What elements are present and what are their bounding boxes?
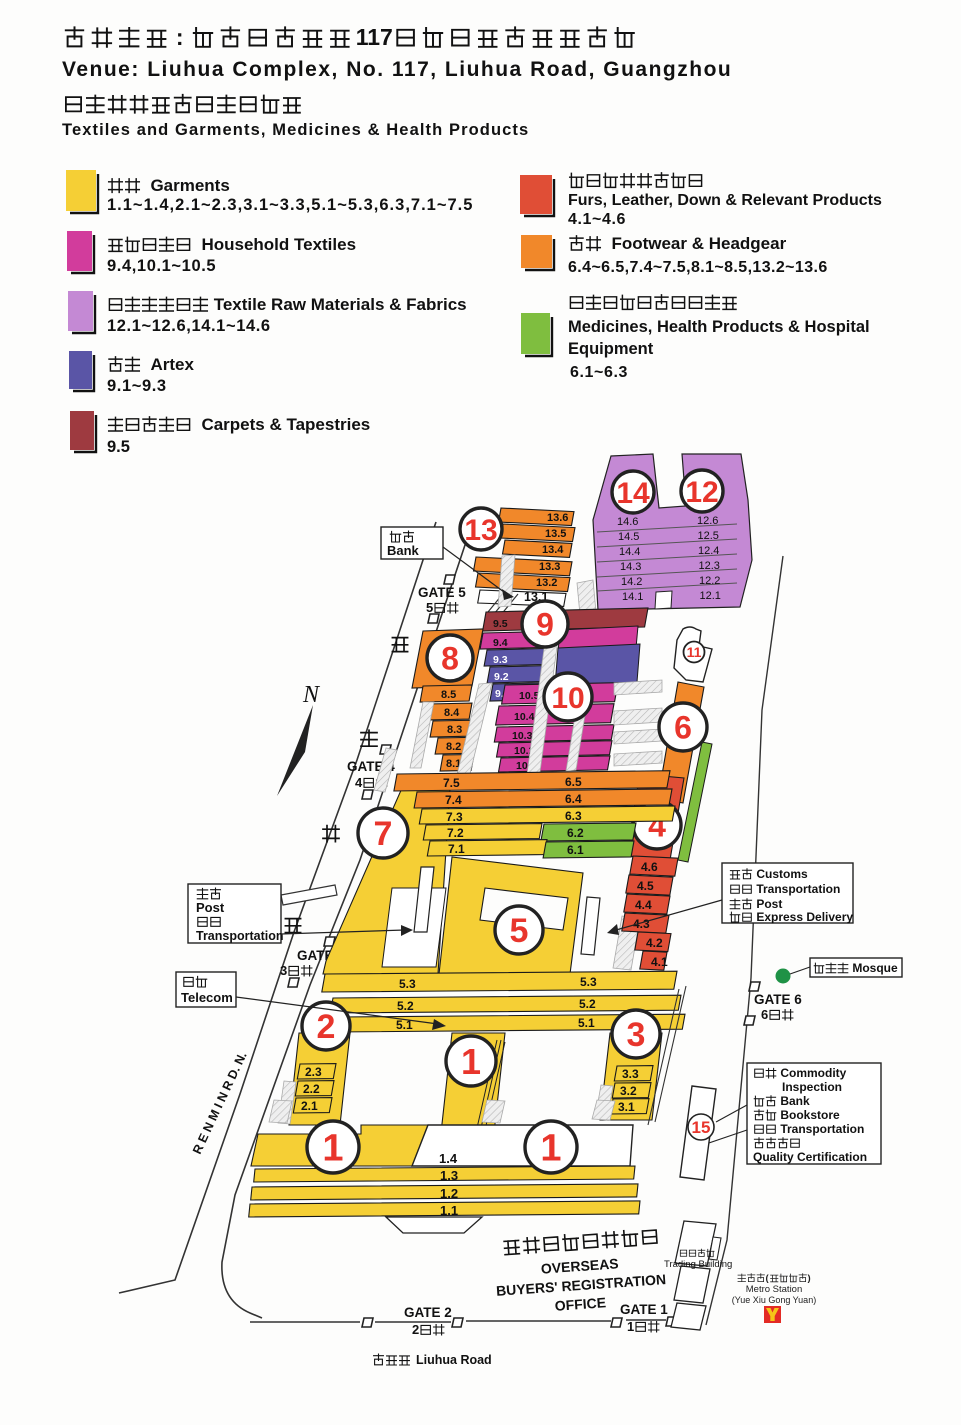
- svg-text:Transportation: Transportation: [780, 1122, 864, 1136]
- svg-text:6.1~6.3: 6.1~6.3: [570, 364, 628, 381]
- svg-text:10.5: 10.5: [519, 690, 540, 702]
- svg-text:GATE 1: GATE 1: [620, 1302, 668, 1317]
- svg-text:10.3: 10.3: [512, 730, 533, 742]
- svg-text:9.5: 9.5: [107, 438, 130, 456]
- svg-text:GATE 2: GATE 2: [404, 1305, 452, 1320]
- svg-text:14: 14: [616, 477, 650, 510]
- svg-text:12: 12: [685, 476, 718, 509]
- svg-text:5.3: 5.3: [580, 975, 597, 989]
- svg-text:GATE 5: GATE 5: [418, 585, 466, 600]
- svg-text:Customs: Customs: [756, 867, 808, 881]
- svg-text:2.2: 2.2: [303, 1082, 320, 1096]
- svg-text:1.1~1.4,2.1~2.3,3.1~3.3,5.1~5.: 1.1~1.4,2.1~2.3,3.1~3.3,5.1~5.3,6.3,7.1~…: [107, 196, 473, 214]
- svg-text:2: 2: [317, 1008, 336, 1046]
- svg-text:3.1: 3.1: [618, 1100, 635, 1114]
- svg-text:9: 9: [536, 607, 554, 643]
- svg-text:9.5: 9.5: [493, 618, 508, 630]
- svg-text:13.6: 13.6: [547, 512, 568, 524]
- svg-text:Household Textiles: Household Textiles: [201, 235, 356, 254]
- svg-text:12.3: 12.3: [699, 560, 720, 572]
- svg-text:5.2: 5.2: [579, 997, 596, 1011]
- svg-text:1: 1: [627, 1319, 634, 1334]
- svg-text:12.6: 12.6: [697, 515, 718, 527]
- svg-text:Bank: Bank: [387, 543, 420, 558]
- svg-text:9.4: 9.4: [493, 637, 508, 649]
- svg-text:7.1: 7.1: [448, 842, 465, 856]
- svg-text:2: 2: [412, 1322, 419, 1337]
- svg-text:): ): [807, 1273, 810, 1284]
- svg-text:Commodity: Commodity: [780, 1066, 846, 1080]
- svg-text:7.2: 7.2: [447, 826, 464, 840]
- svg-text:8.3: 8.3: [447, 724, 462, 736]
- svg-text:1.3: 1.3: [440, 1168, 458, 1183]
- svg-text:1: 1: [461, 1041, 481, 1082]
- svg-text:9.2: 9.2: [494, 671, 509, 683]
- svg-text:14.2: 14.2: [621, 576, 642, 588]
- svg-text:5: 5: [426, 600, 433, 615]
- svg-text:N: N: [302, 682, 321, 708]
- svg-text:6.4~6.5,7.4~7.5,8.1~8.5,13.2~1: 6.4~6.5,7.4~7.5,8.1~8.5,13.2~13.6: [568, 259, 828, 276]
- svg-text:11: 11: [687, 644, 702, 660]
- svg-text:GATE 6: GATE 6: [754, 992, 802, 1007]
- svg-text:7: 7: [374, 815, 393, 853]
- svg-text:12.4: 12.4: [698, 545, 719, 557]
- svg-text:2.1: 2.1: [301, 1099, 318, 1113]
- svg-text:Express Delivery: Express Delivery: [756, 910, 853, 924]
- svg-text:3.2: 3.2: [620, 1084, 637, 1098]
- svg-text:2.3: 2.3: [305, 1065, 322, 1079]
- svg-text:14.1: 14.1: [622, 591, 643, 603]
- svg-text:8.2: 8.2: [446, 741, 461, 753]
- svg-text:Transportation: Transportation: [196, 929, 284, 943]
- svg-text:1.1: 1.1: [440, 1203, 458, 1218]
- svg-text:4.1~4.6: 4.1~4.6: [568, 211, 626, 228]
- svg-text:Telecom: Telecom: [181, 990, 233, 1005]
- svg-text:13.2: 13.2: [536, 577, 557, 589]
- svg-text:6.3: 6.3: [565, 809, 582, 823]
- svg-text:13.3: 13.3: [539, 561, 560, 573]
- svg-text:7.3: 7.3: [446, 810, 463, 824]
- svg-text:4.2: 4.2: [646, 936, 663, 950]
- svg-text:Liuhua Road: Liuhua Road: [416, 1353, 492, 1367]
- svg-text:Mosque: Mosque: [852, 961, 898, 975]
- svg-text:8.5: 8.5: [441, 689, 456, 701]
- svg-text:12.2: 12.2: [699, 575, 720, 587]
- svg-text:Bookstore: Bookstore: [780, 1108, 840, 1122]
- svg-text:Trading Building: Trading Building: [664, 1259, 732, 1270]
- svg-text:9.3: 9.3: [493, 654, 508, 666]
- svg-text:Carpets & Tapestries: Carpets & Tapestries: [201, 415, 370, 434]
- svg-text:Textiles and Garments, Medicin: Textiles and Garments, Medicines & Healt…: [62, 121, 529, 139]
- svg-text:Venue: Liuhua Complex, No. 117: Venue: Liuhua Complex, No. 117, Liuhua R…: [62, 58, 732, 81]
- svg-text:3: 3: [627, 1016, 646, 1054]
- svg-text:13.5: 13.5: [545, 528, 566, 540]
- svg-text:3.3: 3.3: [622, 1067, 639, 1081]
- svg-text:1: 1: [540, 1128, 561, 1170]
- svg-text:15: 15: [692, 1118, 711, 1137]
- svg-text:10: 10: [551, 682, 584, 715]
- svg-text:12.1~12.6,14.1~14.6: 12.1~12.6,14.1~14.6: [107, 317, 271, 335]
- svg-text:Quality Certification: Quality Certification: [753, 1150, 867, 1164]
- svg-text:14.6: 14.6: [617, 516, 638, 528]
- svg-text:8.4: 8.4: [444, 707, 460, 719]
- svg-text:4.5: 4.5: [637, 879, 654, 893]
- svg-text:6: 6: [674, 710, 692, 746]
- svg-text:Transportation: Transportation: [756, 882, 840, 896]
- svg-text:14.5: 14.5: [618, 531, 639, 543]
- svg-text:Post: Post: [196, 900, 225, 915]
- svg-text:(Yue Xiu Gong Yuan): (Yue Xiu Gong Yuan): [732, 1295, 816, 1305]
- svg-text:Bank: Bank: [780, 1094, 810, 1108]
- svg-text:1.2: 1.2: [440, 1186, 458, 1201]
- svg-text:1: 1: [322, 1128, 343, 1170]
- svg-text:6: 6: [761, 1007, 768, 1022]
- svg-text:5: 5: [510, 912, 529, 950]
- svg-text:7.4: 7.4: [445, 793, 462, 807]
- svg-text:3: 3: [280, 963, 287, 978]
- svg-text:6.1: 6.1: [567, 843, 584, 857]
- svg-text:6.2: 6.2: [567, 826, 584, 840]
- svg-text:5.2: 5.2: [397, 999, 414, 1013]
- svg-text:14.3: 14.3: [620, 561, 641, 573]
- svg-text:5.1: 5.1: [578, 1016, 595, 1030]
- svg-text:13.4: 13.4: [542, 544, 564, 556]
- svg-text:Garments: Garments: [150, 176, 229, 195]
- svg-text:4.1: 4.1: [651, 955, 668, 969]
- svg-text:Artex: Artex: [150, 355, 194, 374]
- svg-text:4.6: 4.6: [641, 860, 658, 874]
- svg-text:Post: Post: [756, 897, 782, 911]
- svg-text:9.4,10.1~10.5: 9.4,10.1~10.5: [107, 257, 216, 275]
- svg-text:1.4: 1.4: [439, 1151, 458, 1166]
- svg-text:4: 4: [355, 775, 363, 790]
- svg-text:Metro Station: Metro Station: [746, 1284, 803, 1295]
- svg-text:Textile Raw Materials & Fabric: Textile Raw Materials & Fabrics: [214, 295, 467, 314]
- svg-text:Equipment: Equipment: [568, 340, 654, 358]
- svg-text:Furs, Leather, Down & Relevant: Furs, Leather, Down & Relevant Products: [568, 192, 882, 209]
- svg-text:5.3: 5.3: [399, 977, 416, 991]
- svg-text:4.4: 4.4: [635, 898, 652, 912]
- svg-text:12.1: 12.1: [700, 590, 721, 602]
- svg-text:117: 117: [356, 24, 393, 50]
- svg-text:Inspection: Inspection: [782, 1080, 842, 1094]
- svg-text:7.5: 7.5: [443, 776, 460, 790]
- svg-text::: :: [176, 24, 184, 50]
- svg-text:6.5: 6.5: [565, 775, 582, 789]
- svg-text:14.4: 14.4: [619, 546, 640, 558]
- svg-text:12.5: 12.5: [698, 530, 719, 542]
- svg-text:13: 13: [464, 514, 497, 547]
- svg-text:8: 8: [441, 641, 459, 677]
- svg-text:10.4: 10.4: [514, 711, 535, 723]
- svg-text:Footwear & Headgear: Footwear & Headgear: [611, 234, 786, 253]
- svg-text:9.1~9.3: 9.1~9.3: [107, 377, 167, 395]
- svg-text:6.4: 6.4: [565, 792, 582, 806]
- svg-text:Medicines, Health Products & H: Medicines, Health Products & Hospital: [568, 318, 870, 336]
